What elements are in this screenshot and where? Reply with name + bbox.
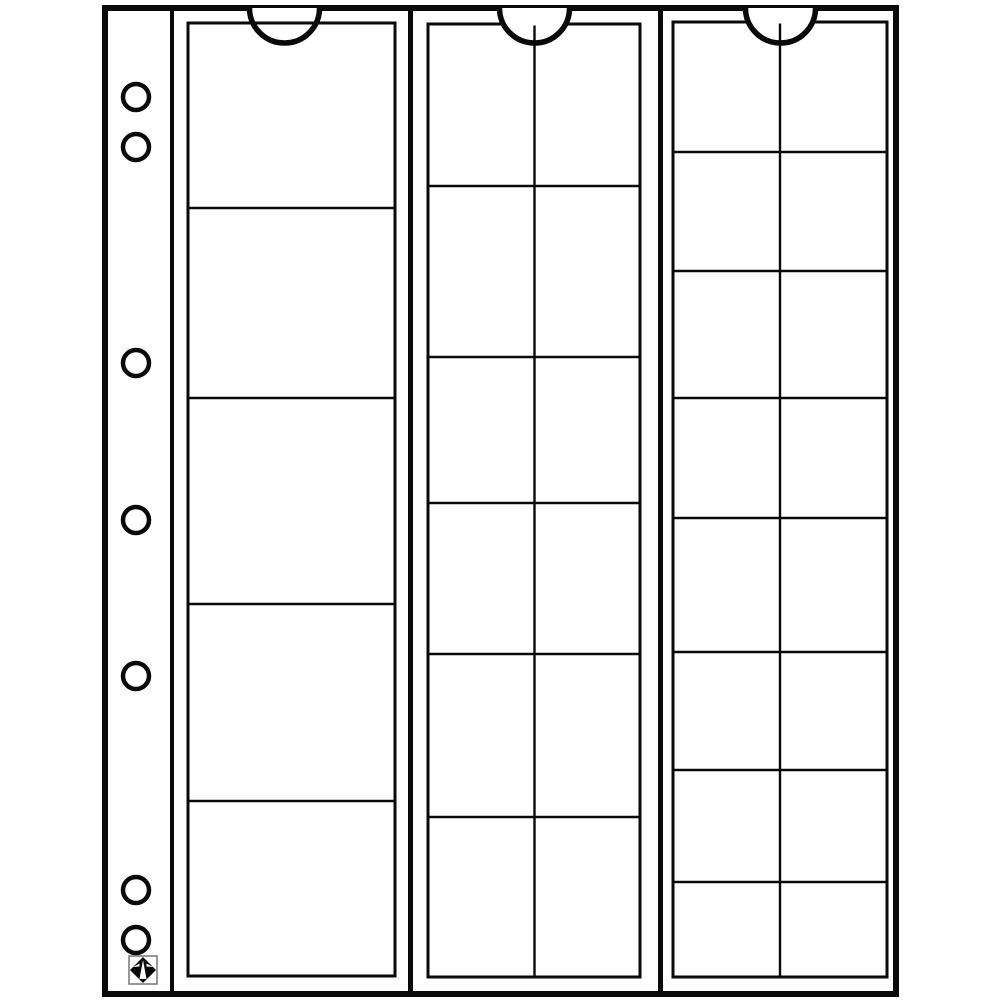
- binder-hole: [123, 134, 149, 160]
- binder-hole: [123, 507, 149, 533]
- binder-hole: [123, 350, 149, 376]
- binder-hole: [123, 84, 149, 110]
- leuchtturm-logo: [129, 956, 157, 984]
- binder-hole: [123, 663, 149, 689]
- coin-sheet-product-image: [0, 0, 1000, 1000]
- binder-hole: [123, 877, 149, 903]
- binder-hole: [123, 927, 149, 953]
- sheet-outline: [105, 8, 896, 994]
- coin-sheet-illustration: [0, 0, 1000, 1000]
